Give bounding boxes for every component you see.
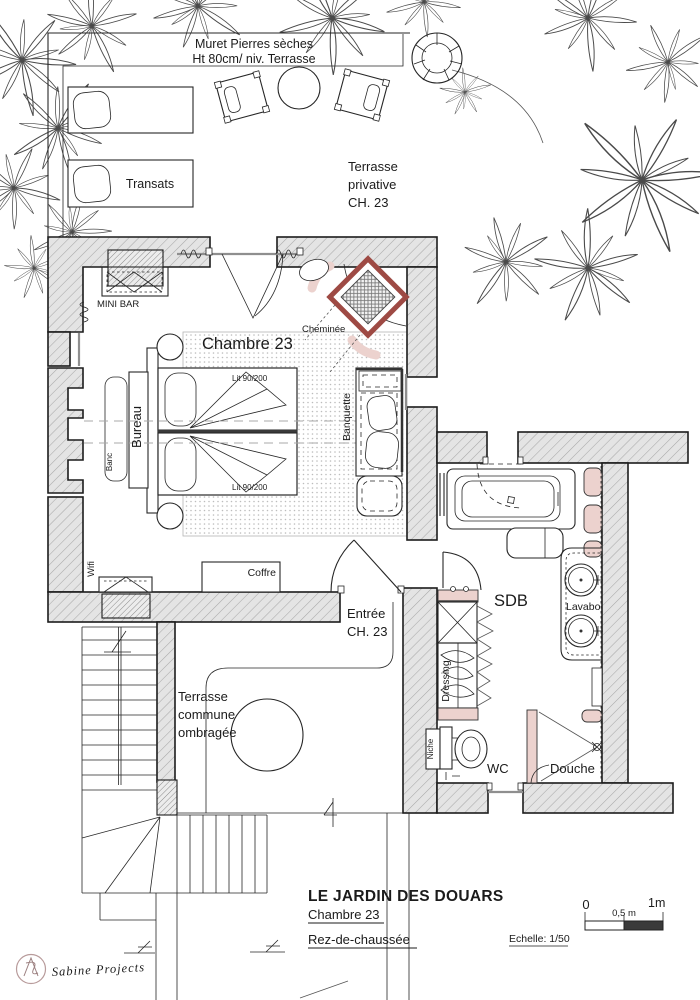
level-subtitle: Rez-de-chaussée — [308, 932, 410, 947]
brand-name: Sabine Projects — [51, 960, 145, 979]
tub-towel-bar — [440, 473, 444, 516]
french-door-leaves — [222, 254, 283, 318]
terrace-table — [278, 67, 320, 109]
niche-label: Niche — [426, 738, 435, 759]
scale-label: Echelle: 1/50 — [509, 933, 570, 945]
wall-left-niches — [48, 368, 83, 493]
entree-label-line2: CH. 23 — [347, 624, 387, 639]
floor-plan-page: Muret Pierres sèches Ht 80cm/ niv. Terra… — [0, 0, 700, 1000]
cheminee-label: Cheminée — [302, 324, 345, 335]
room-subtitle: Chambre 23 — [308, 907, 380, 922]
chambre-label: Chambre 23 — [202, 335, 293, 353]
wifi-console — [99, 577, 152, 618]
scale-zero: 0 — [582, 897, 589, 912]
terrace-chair-left — [214, 71, 269, 123]
wall-left-lower — [48, 497, 83, 592]
banquette-seat — [356, 368, 402, 516]
garden-table — [231, 699, 303, 771]
terrasse-privative-line3: CH. 23 — [348, 195, 388, 210]
terrace-chair-right — [334, 69, 389, 121]
bureau-label: Bureau — [129, 406, 144, 448]
wall-stairs — [157, 622, 175, 782]
douche-label: Douche — [550, 761, 595, 776]
muret-label-line2: Ht 80cm/ niv. Terrasse — [192, 52, 315, 66]
wall-bath-bottom-left — [437, 783, 488, 813]
banc-label: Banc — [105, 453, 114, 471]
wc-label: WC — [487, 761, 509, 776]
wall-stairs-foot — [157, 780, 177, 815]
stairs-upper-flight — [82, 627, 157, 893]
mini-bar-label: MINI BAR — [97, 299, 139, 310]
scale-half: 0,5 m — [612, 908, 636, 919]
wall-right-upper — [407, 267, 437, 377]
wall-bath-left — [403, 588, 437, 813]
wall-left-window-pier — [48, 332, 70, 366]
dressing-label: Dressing — [440, 660, 452, 702]
terrasse-commune-line3: ombragée — [178, 725, 237, 740]
bathtub — [440, 469, 575, 529]
terrasse-commune-line2: commune — [178, 707, 235, 722]
lavabo-label: Lavabo — [566, 601, 601, 613]
bed2-label: Lit 90/200 — [232, 483, 268, 492]
stairs-direction-arrow — [104, 631, 131, 652]
coffre-label: Coffre — [248, 567, 277, 579]
headboard — [147, 348, 158, 513]
transats-label: Transats — [126, 177, 174, 191]
bedside-table-top — [157, 334, 183, 360]
terrasse-privative-line1: Terrasse — [348, 159, 398, 174]
wall-bath-bottom-right — [523, 783, 673, 813]
wall-bedroom-bottom — [48, 592, 340, 622]
wall-bath-right — [602, 463, 628, 783]
mini-bar-unit — [102, 250, 168, 296]
garden-curve — [300, 981, 348, 998]
entrance-door — [331, 540, 401, 592]
floor-plan-canvas: Muret Pierres sèches Ht 80cm/ niv. Terra… — [0, 0, 700, 1000]
wall-right-mid — [407, 407, 437, 540]
bath-bottom-gap — [487, 783, 523, 792]
tub-bench — [507, 528, 563, 558]
scale-one: 1m — [648, 896, 665, 910]
wifi-label: Wifi — [86, 561, 97, 577]
bed1-label: Lit 90/200 — [232, 374, 268, 383]
wall-bath-top-right — [518, 432, 688, 463]
project-title: LE JARDIN DES DOUARS — [308, 888, 503, 905]
logo-monogram-icon — [24, 958, 38, 976]
sdb-label: SDB — [494, 592, 528, 610]
bedside-table-bottom — [157, 503, 183, 529]
pillow-bottom — [165, 438, 196, 491]
entree-label-line1: Entrée — [347, 606, 385, 621]
terrasse-commune-line1: Terrasse — [178, 689, 228, 704]
banquette-label: Banquette — [341, 393, 353, 441]
muret-label-line1: Muret Pierres sèches — [195, 37, 313, 51]
terrasse-privative-line2: privative — [348, 177, 396, 192]
tree — [412, 33, 462, 83]
stairs-winder-lines — [82, 817, 160, 893]
pillow-top — [165, 373, 196, 426]
sdb-door — [443, 552, 481, 590]
brand-logo — [17, 955, 46, 984]
shower-niche — [592, 668, 602, 706]
wall-bath-top-left — [437, 432, 487, 463]
